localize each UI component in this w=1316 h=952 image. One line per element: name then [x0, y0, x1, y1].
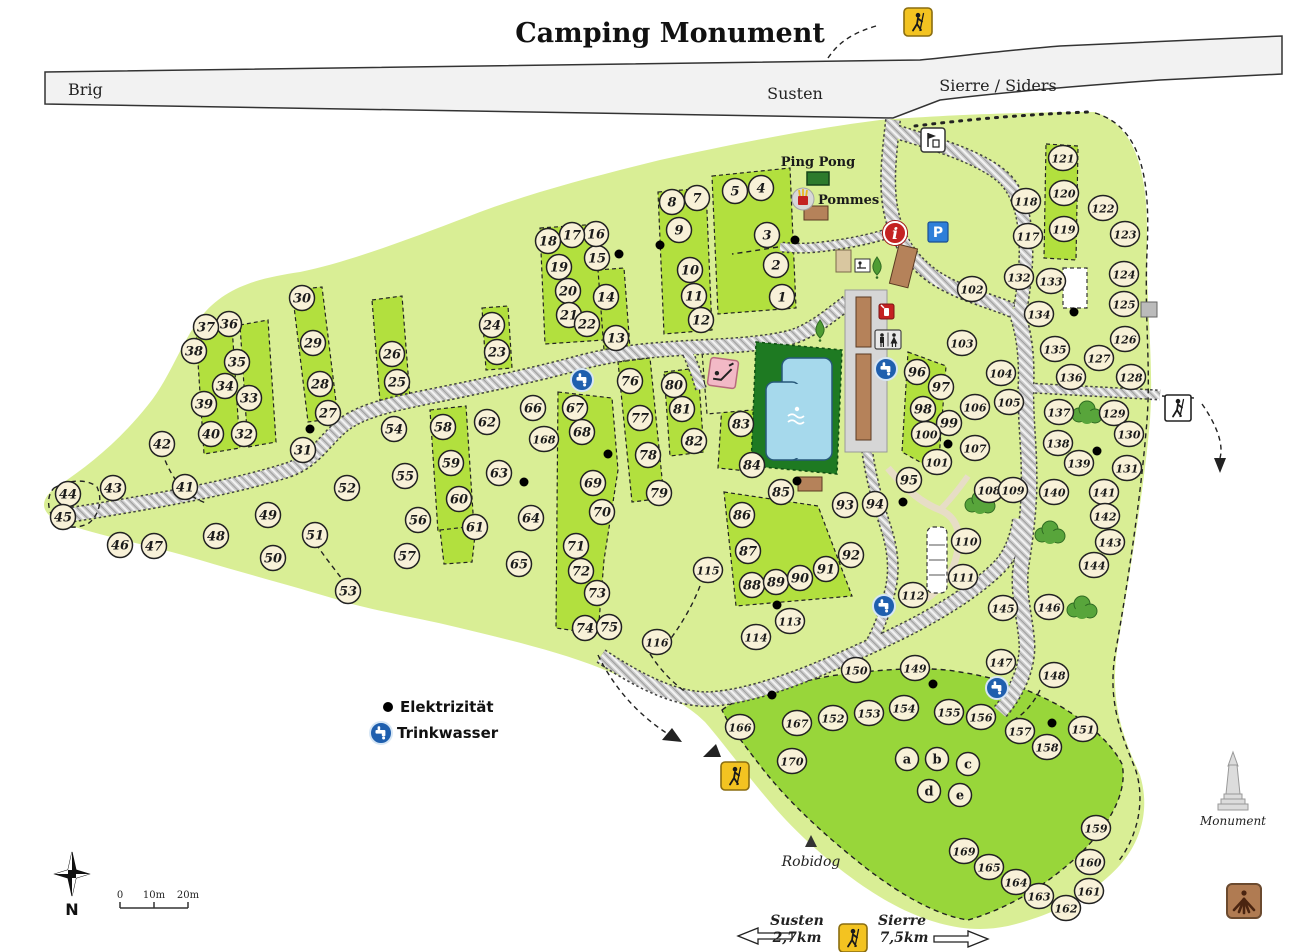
svg-text:94: 94: [866, 498, 884, 513]
svg-text:59: 59: [442, 457, 460, 472]
site-marker-74: 74: [573, 616, 598, 641]
sierre-direction-distance: 7,5km: [880, 930, 929, 946]
site-marker-148: 148: [1040, 663, 1069, 688]
scale-bar: [120, 902, 188, 908]
svg-text:5: 5: [730, 185, 739, 200]
site-marker-124: 124: [1110, 262, 1139, 287]
svg-text:170: 170: [781, 756, 804, 769]
svg-text:143: 143: [1099, 537, 1122, 550]
site-marker-15: 15: [585, 246, 610, 271]
site-marker-22: 22: [575, 312, 600, 337]
site-marker-23: 23: [485, 340, 510, 365]
site-marker-13: 13: [604, 326, 629, 351]
svg-text:19: 19: [550, 261, 568, 276]
camping-map: i P: [0, 0, 1316, 952]
site-marker-11: 11: [682, 284, 707, 309]
svg-text:23: 23: [487, 346, 506, 361]
svg-text:48: 48: [207, 530, 225, 545]
site-marker-139: 139: [1065, 451, 1094, 476]
site-marker-37: 37: [194, 315, 219, 340]
site-marker-115: 115: [694, 558, 723, 583]
site-marker-3: 3: [755, 223, 780, 248]
svg-text:10: 10: [681, 264, 699, 279]
site-marker-40: 40: [199, 422, 224, 447]
site-marker-96: 96: [905, 360, 930, 385]
svg-text:110: 110: [955, 536, 978, 549]
svg-text:37: 37: [197, 321, 215, 336]
site-marker-122: 122: [1089, 196, 1118, 221]
drinking-water-icon: [873, 595, 895, 617]
svg-text:16: 16: [587, 228, 605, 243]
site-marker-157: 157: [1006, 719, 1035, 744]
svg-text:57: 57: [398, 550, 416, 565]
site-marker-73: 73: [585, 581, 610, 606]
susten-direction-distance: 2,7km: [772, 930, 822, 946]
svg-text:34: 34: [216, 380, 234, 395]
site-marker-161: 161: [1075, 879, 1104, 904]
compass-north-label: N: [65, 900, 78, 919]
svg-text:32: 32: [235, 428, 253, 443]
svg-text:38: 38: [185, 345, 203, 360]
electricity-dot: [944, 440, 953, 449]
svg-text:44: 44: [59, 488, 77, 503]
svg-text:107: 107: [964, 443, 987, 456]
svg-text:62: 62: [478, 416, 496, 431]
svg-text:77: 77: [631, 412, 649, 427]
svg-text:63: 63: [490, 467, 508, 482]
site-marker-16: 16: [584, 222, 609, 247]
site-marker-41: 41: [173, 475, 198, 500]
site-marker-167: 167: [783, 711, 812, 736]
svg-text:115: 115: [697, 565, 720, 578]
site-marker-70: 70: [590, 500, 615, 525]
parking-sign: P: [928, 222, 948, 242]
parking-sign-letter: P: [933, 225, 943, 241]
site-marker-95: 95: [897, 468, 922, 493]
svg-text:169: 169: [953, 846, 976, 859]
svg-text:159: 159: [1085, 823, 1108, 836]
electricity-dot: [791, 236, 800, 245]
site-marker-51: 51: [303, 523, 328, 548]
svg-text:75: 75: [600, 621, 618, 636]
scale-0: 0: [117, 890, 123, 901]
electricity-dot: [793, 477, 802, 486]
site-marker-170: 170: [778, 749, 807, 774]
site-marker-153: 153: [855, 701, 884, 726]
site-marker-106: 106: [961, 395, 990, 420]
svg-text:4: 4: [756, 182, 765, 197]
site-marker-39: 39: [192, 392, 217, 417]
svg-text:99: 99: [940, 417, 958, 432]
site-marker-109: 109: [999, 478, 1028, 503]
site-marker-83: 83: [729, 412, 754, 437]
site-marker-169: 169: [950, 839, 979, 864]
site-marker-64: 64: [519, 506, 544, 531]
svg-text:149: 149: [904, 663, 927, 676]
site-marker-136: 136: [1057, 365, 1086, 390]
svg-text:13: 13: [607, 332, 625, 347]
site-marker-118: 118: [1012, 189, 1041, 214]
svg-text:46: 46: [111, 539, 129, 554]
site-marker-c: c: [957, 753, 980, 776]
svg-text:3: 3: [762, 229, 771, 244]
legend-water-icon: [370, 722, 392, 744]
site-marker-128: 128: [1117, 365, 1146, 390]
svg-text:67: 67: [566, 402, 584, 417]
monument-label: Monument: [1199, 814, 1266, 828]
svg-text:61: 61: [466, 521, 484, 536]
site-marker-27: 27: [316, 401, 341, 426]
site-marker-57: 57: [395, 544, 420, 569]
site-marker-162: 162: [1052, 896, 1081, 921]
svg-text:127: 127: [1088, 353, 1111, 366]
svg-text:104: 104: [990, 368, 1013, 381]
site-marker-69: 69: [581, 471, 606, 496]
svg-text:148: 148: [1043, 670, 1066, 683]
site-marker-138: 138: [1044, 431, 1073, 456]
svg-text:95: 95: [900, 474, 918, 489]
site-marker-28: 28: [308, 372, 333, 397]
site-marker-160: 160: [1076, 850, 1105, 875]
svg-text:150: 150: [845, 665, 868, 678]
drinking-water-icon: [571, 369, 593, 391]
svg-text:49: 49: [259, 509, 277, 524]
svg-text:145: 145: [992, 603, 1015, 616]
svg-text:31: 31: [294, 444, 312, 459]
site-marker-53: 53: [336, 579, 361, 604]
site-marker-12: 12: [689, 308, 714, 333]
electricity-dot: [773, 601, 782, 610]
svg-text:c: c: [964, 758, 972, 773]
site-marker-113: 113: [776, 609, 805, 634]
svg-text:146: 146: [1038, 602, 1061, 615]
site-marker-145: 145: [989, 596, 1018, 621]
site-marker-30: 30: [290, 286, 315, 311]
svg-text:122: 122: [1092, 203, 1115, 216]
svg-text:53: 53: [339, 585, 357, 600]
svg-text:65: 65: [510, 558, 528, 573]
legend-electricity-dot: [383, 702, 393, 712]
svg-text:56: 56: [409, 514, 427, 529]
electricity-dot: [1048, 719, 1057, 728]
svg-text:81: 81: [673, 403, 691, 418]
site-marker-d: d: [918, 780, 941, 803]
svg-text:18: 18: [539, 235, 557, 250]
svg-text:66: 66: [524, 402, 542, 417]
site-marker-20: 20: [556, 279, 581, 304]
site-marker-36: 36: [217, 312, 242, 337]
site-marker-111: 111: [949, 565, 978, 590]
svg-text:168: 168: [533, 434, 556, 447]
svg-text:93: 93: [836, 499, 854, 514]
site-marker-78: 78: [636, 443, 661, 468]
site-marker-a: a: [896, 748, 919, 771]
site-marker-10: 10: [678, 258, 703, 283]
svg-text:36: 36: [220, 318, 238, 333]
ping-pong-table: [807, 172, 829, 185]
svg-text:157: 157: [1009, 726, 1032, 739]
site-marker-60: 60: [447, 487, 472, 512]
site-marker-55: 55: [393, 464, 418, 489]
svg-text:98: 98: [914, 403, 932, 418]
site-marker-149: 149: [901, 656, 930, 681]
svg-text:132: 132: [1008, 272, 1031, 285]
svg-text:52: 52: [338, 482, 356, 497]
site-marker-146: 146: [1035, 595, 1064, 620]
svg-text:39: 39: [195, 398, 213, 413]
electricity-dot: [768, 691, 777, 700]
site-marker-164: 164: [1002, 870, 1031, 895]
site-marker-67: 67: [563, 396, 588, 421]
scale-10m: 10m: [143, 890, 166, 901]
svg-text:136: 136: [1060, 372, 1083, 385]
highway-label-susten: Susten: [767, 84, 823, 103]
svg-text:133: 133: [1040, 276, 1063, 289]
site-marker-94: 94: [863, 492, 888, 517]
svg-text:118: 118: [1015, 196, 1038, 209]
svg-text:22: 22: [577, 318, 596, 333]
svg-text:134: 134: [1028, 309, 1051, 322]
svg-text:142: 142: [1094, 511, 1117, 524]
site-marker-117: 117: [1014, 224, 1043, 249]
svg-text:60: 60: [450, 493, 468, 508]
site-marker-66: 66: [521, 396, 546, 421]
site-marker-45: 45: [51, 505, 76, 530]
svg-text:7: 7: [692, 192, 701, 207]
svg-text:124: 124: [1113, 269, 1136, 282]
svg-text:121: 121: [1052, 153, 1075, 166]
svg-text:151: 151: [1072, 724, 1095, 737]
svg-text:85: 85: [772, 486, 790, 501]
site-marker-68: 68: [570, 420, 595, 445]
svg-text:90: 90: [791, 572, 809, 587]
svg-text:79: 79: [650, 487, 668, 502]
svg-text:113: 113: [779, 616, 802, 629]
compass-rose: [55, 852, 89, 896]
site-marker-46: 46: [108, 533, 133, 558]
monument-drawing: [1218, 752, 1248, 810]
svg-text:138: 138: [1047, 438, 1070, 451]
svg-text:158: 158: [1036, 742, 1059, 755]
site-marker-140: 140: [1040, 480, 1069, 505]
svg-text:78: 78: [639, 449, 657, 464]
svg-text:156: 156: [970, 712, 993, 725]
site-marker-71: 71: [564, 534, 589, 559]
svg-text:163: 163: [1028, 891, 1051, 904]
svg-text:141: 141: [1093, 487, 1116, 500]
svg-text:162: 162: [1055, 903, 1078, 916]
ping-pong-label: Ping Pong: [781, 155, 855, 170]
site-marker-104: 104: [987, 361, 1016, 386]
svg-text:164: 164: [1005, 877, 1028, 890]
svg-text:69: 69: [584, 477, 602, 492]
svg-text:100: 100: [915, 429, 938, 442]
site-marker-33: 33: [237, 386, 262, 411]
site-marker-147: 147: [987, 650, 1016, 675]
electricity-dot: [656, 241, 665, 250]
site-marker-134: 134: [1025, 302, 1054, 327]
site-marker-86: 86: [730, 503, 755, 528]
fire-extinguisher-icon: [879, 304, 894, 319]
svg-text:72: 72: [572, 565, 590, 580]
svg-text:131: 131: [1116, 463, 1139, 476]
svg-text:161: 161: [1078, 886, 1101, 899]
svg-text:9: 9: [674, 224, 683, 239]
svg-text:147: 147: [990, 657, 1013, 670]
svg-text:27: 27: [318, 407, 337, 422]
site-marker-107: 107: [961, 436, 990, 461]
svg-text:87: 87: [739, 545, 757, 560]
svg-text:24: 24: [482, 319, 501, 334]
svg-text:166: 166: [729, 722, 752, 735]
svg-text:68: 68: [573, 426, 591, 441]
electricity-dot: [899, 498, 908, 507]
electricity-dot: [1070, 308, 1079, 317]
site-marker-32: 32: [232, 422, 257, 447]
svg-text:155: 155: [938, 707, 961, 720]
svg-text:84: 84: [743, 459, 761, 474]
hiking-trail-sign-icon: [839, 924, 867, 952]
svg-text:92: 92: [842, 549, 860, 564]
hiking-trail-sign-icon: [721, 762, 749, 790]
svg-text:64: 64: [522, 512, 540, 527]
svg-text:103: 103: [951, 338, 974, 351]
svg-text:160: 160: [1079, 857, 1102, 870]
site-marker-85: 85: [769, 480, 794, 505]
svg-text:12: 12: [692, 314, 710, 329]
pommes-icon: [792, 188, 814, 210]
site-marker-77: 77: [628, 406, 653, 431]
site-marker-155: 155: [935, 700, 964, 725]
site-marker-62: 62: [475, 410, 500, 435]
svg-text:126: 126: [1114, 334, 1137, 347]
site-marker-b: b: [926, 748, 949, 771]
svg-text:33: 33: [240, 392, 258, 407]
site-marker-132: 132: [1005, 265, 1034, 290]
electricity-dot: [929, 680, 938, 689]
svg-text:47: 47: [145, 540, 163, 555]
site-marker-131: 131: [1113, 456, 1142, 481]
site-marker-144: 144: [1080, 553, 1109, 578]
svg-text:41: 41: [176, 481, 194, 496]
site-marker-158: 158: [1033, 735, 1062, 760]
electricity-dot: [1093, 447, 1102, 456]
site-marker-81: 81: [670, 397, 695, 422]
svg-text:102: 102: [961, 284, 984, 297]
legend-water-label: Trinkwasser: [397, 724, 499, 742]
svg-text:d: d: [924, 785, 933, 800]
site-marker-35: 35: [225, 350, 250, 375]
svg-text:116: 116: [646, 637, 669, 650]
svg-text:15: 15: [588, 252, 606, 267]
site-marker-156: 156: [967, 705, 996, 730]
site-marker-142: 142: [1091, 504, 1120, 529]
svg-text:130: 130: [1118, 429, 1141, 442]
svg-text:54: 54: [385, 423, 403, 438]
scale-20m: 20m: [177, 890, 200, 901]
playground-icon: [707, 357, 739, 389]
svg-text:17: 17: [563, 229, 581, 244]
svg-text:20: 20: [558, 285, 577, 300]
svg-text:2: 2: [770, 259, 780, 274]
site-marker-65: 65: [507, 552, 532, 577]
svg-text:108: 108: [978, 485, 1001, 498]
site-marker-59: 59: [439, 451, 464, 476]
site-marker-112: 112: [899, 583, 928, 608]
svg-text:82: 82: [685, 435, 703, 450]
site-marker-166: 166: [726, 715, 755, 740]
susten-direction-name: Susten: [770, 913, 824, 929]
site-marker-90: 90: [788, 566, 813, 591]
svg-text:117: 117: [1017, 231, 1040, 244]
svg-text:40: 40: [202, 428, 220, 443]
map-title: Camping Monument: [515, 18, 825, 49]
site-marker-87: 87: [736, 539, 761, 564]
svg-text:137: 137: [1048, 407, 1071, 420]
site-marker-137: 137: [1045, 400, 1074, 425]
site-marker-130: 130: [1115, 422, 1144, 447]
svg-text:152: 152: [822, 713, 845, 726]
site-marker-17: 17: [560, 223, 585, 248]
site-marker-38: 38: [182, 339, 207, 364]
svg-text:129: 129: [1103, 408, 1126, 421]
site-marker-120: 120: [1050, 181, 1079, 206]
site-marker-91: 91: [814, 557, 839, 582]
svg-text:26: 26: [382, 348, 401, 363]
svg-text:29: 29: [303, 337, 322, 352]
site-marker-150: 150: [842, 658, 871, 683]
highway-label-brig: Brig: [68, 80, 103, 99]
svg-text:14: 14: [597, 291, 615, 306]
site-marker-143: 143: [1096, 530, 1125, 555]
site-marker-82: 82: [682, 429, 707, 454]
svg-text:128: 128: [1120, 372, 1143, 385]
svg-text:58: 58: [434, 421, 452, 436]
site-marker-29: 29: [301, 331, 326, 356]
site-marker-8: 8: [660, 190, 685, 215]
site-marker-e: e: [949, 784, 972, 807]
svg-text:114: 114: [745, 632, 768, 645]
site-marker-48: 48: [204, 524, 229, 549]
site-marker-119: 119: [1050, 217, 1079, 242]
site-marker-97: 97: [929, 375, 954, 400]
site-marker-61: 61: [463, 515, 488, 540]
svg-text:153: 153: [858, 708, 881, 721]
svg-text:35: 35: [228, 356, 246, 371]
svg-text:140: 140: [1043, 487, 1066, 500]
sierre-direction-name: Sierre: [878, 913, 926, 929]
svg-text:119: 119: [1053, 224, 1076, 237]
svg-text:89: 89: [767, 576, 785, 591]
site-marker-79: 79: [647, 481, 672, 506]
svg-text:1: 1: [777, 291, 786, 306]
site-marker-141: 141: [1090, 480, 1119, 505]
svg-text:112: 112: [902, 590, 925, 603]
svg-text:135: 135: [1044, 344, 1067, 357]
svg-text:123: 123: [1114, 229, 1137, 242]
svg-text:45: 45: [54, 511, 72, 526]
site-marker-5: 5: [723, 179, 748, 204]
svg-text:51: 51: [306, 529, 324, 544]
site-marker-152: 152: [819, 706, 848, 731]
site-marker-121: 121: [1049, 146, 1078, 171]
site-marker-1: 1: [770, 285, 795, 310]
site-marker-151: 151: [1069, 717, 1098, 742]
site-marker-125: 125: [1110, 292, 1139, 317]
svg-text:70: 70: [593, 506, 611, 521]
site-marker-25: 25: [385, 370, 410, 395]
svg-text:91: 91: [817, 563, 835, 578]
